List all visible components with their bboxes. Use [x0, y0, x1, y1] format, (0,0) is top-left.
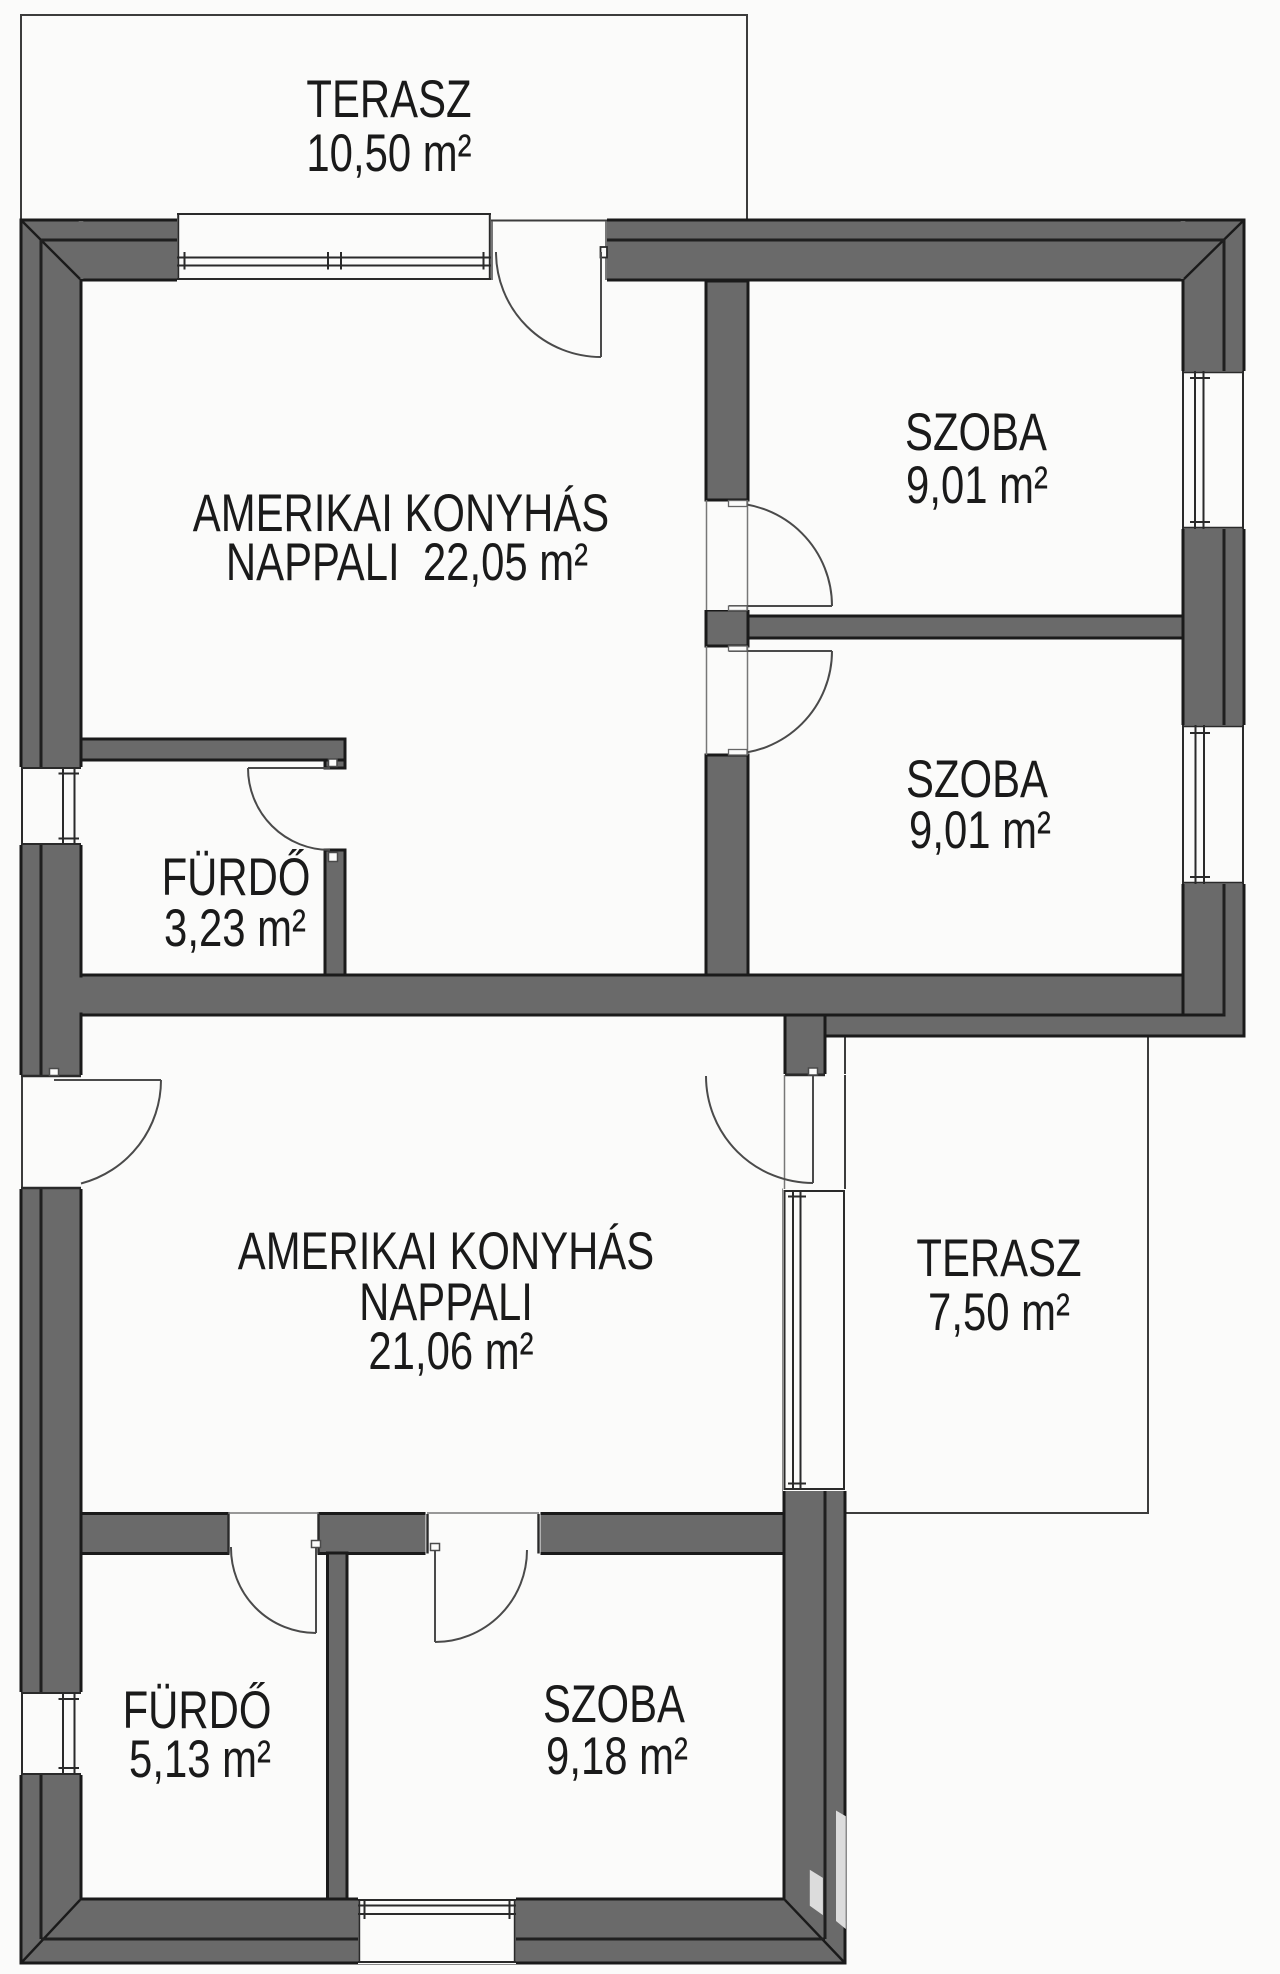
svg-text:SZOBA: SZOBA: [543, 1675, 685, 1734]
svg-text:NAPPALI 22,05 m²: NAPPALI 22,05 m²: [226, 533, 588, 592]
svg-text:SZOBA: SZOBA: [906, 750, 1048, 809]
svg-text:9,18 m²: 9,18 m²: [546, 1727, 688, 1786]
svg-text:FÜRDŐ: FÜRDŐ: [162, 848, 311, 907]
svg-text:7,50 m²: 7,50 m²: [928, 1283, 1070, 1342]
svg-text:10,50 m²: 10,50 m²: [306, 124, 471, 183]
svg-text:21,06 m²: 21,06 m²: [368, 1322, 533, 1381]
svg-text:5,13 m²: 5,13 m²: [129, 1730, 271, 1789]
svg-text:SZOBA: SZOBA: [905, 403, 1047, 462]
svg-text:AMERIKAI KONYHÁS: AMERIKAI KONYHÁS: [238, 1222, 654, 1281]
svg-text:TERASZ: TERASZ: [306, 70, 471, 129]
svg-text:9,01 m²: 9,01 m²: [906, 456, 1048, 515]
svg-text:9,01 m²: 9,01 m²: [909, 801, 1051, 860]
svg-text:3,23 m²: 3,23 m²: [164, 899, 306, 958]
svg-text:TERASZ: TERASZ: [916, 1229, 1081, 1288]
